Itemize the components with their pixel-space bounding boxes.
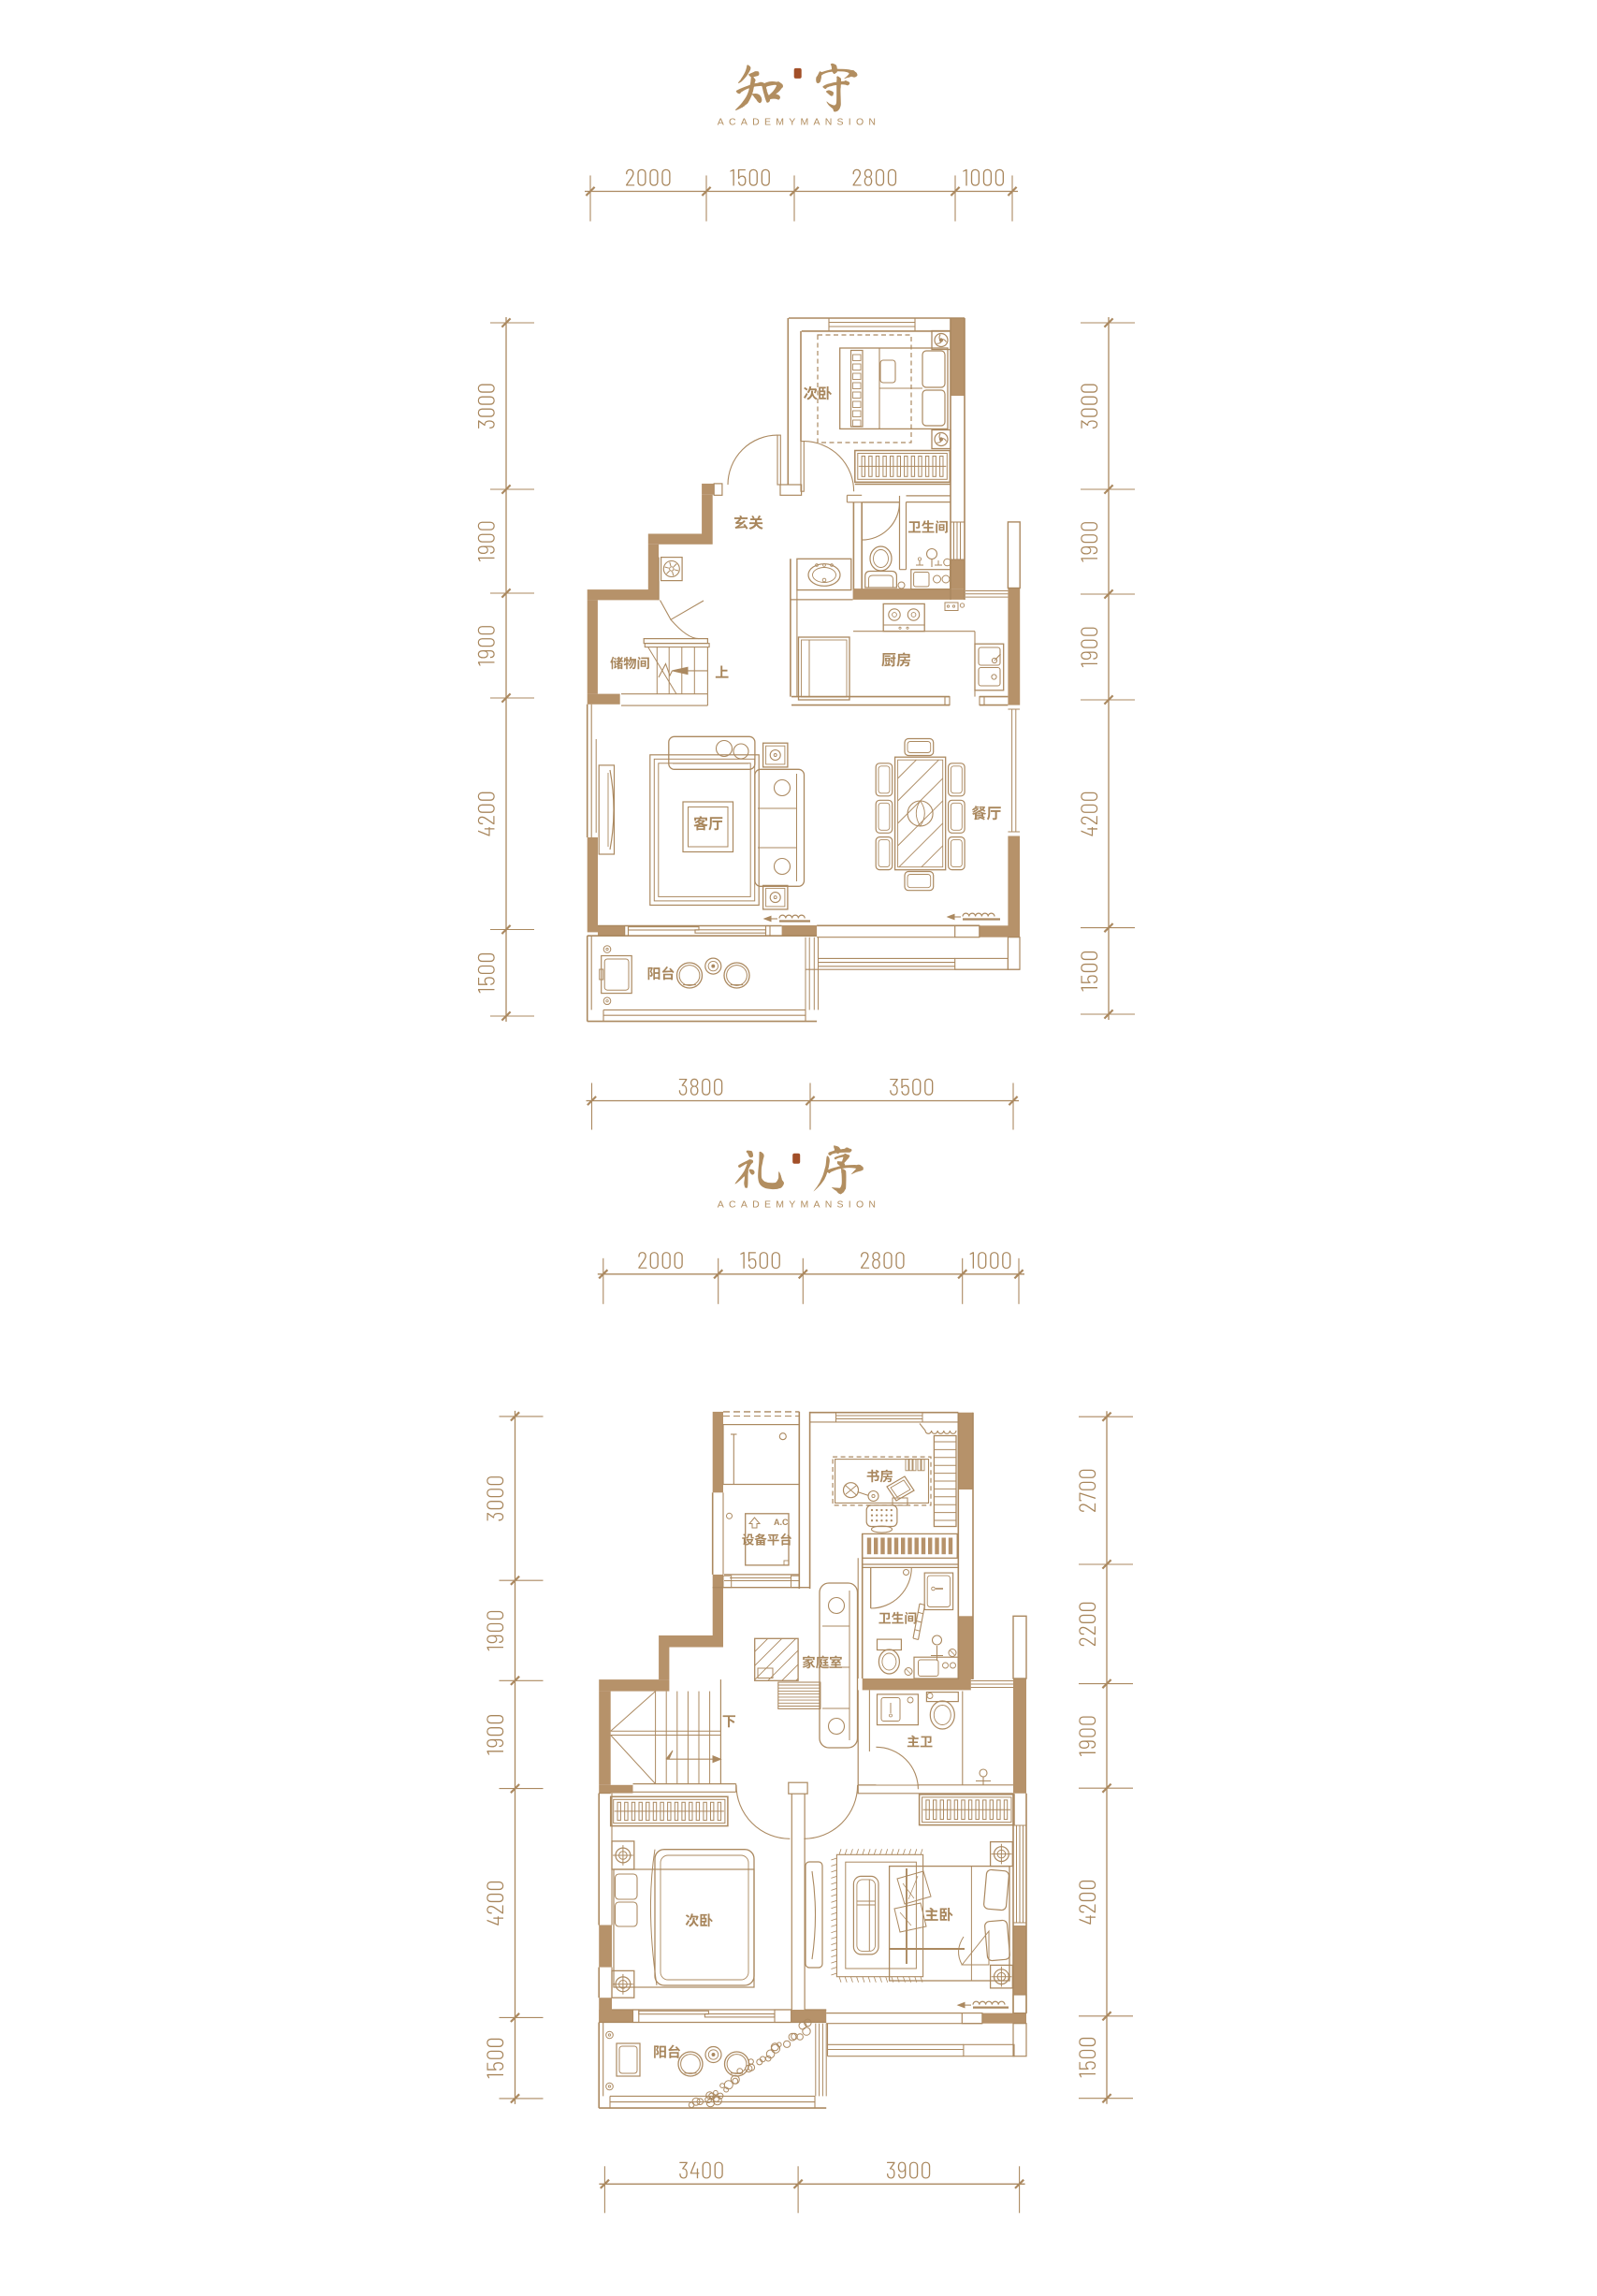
svg-text:ACADEMYMANSION: ACADEMYMANSION xyxy=(718,117,880,128)
svg-text:A.C: A.C xyxy=(774,1518,789,1527)
svg-text:ACADEMYMANSION: ACADEMYMANSION xyxy=(718,1199,880,1210)
